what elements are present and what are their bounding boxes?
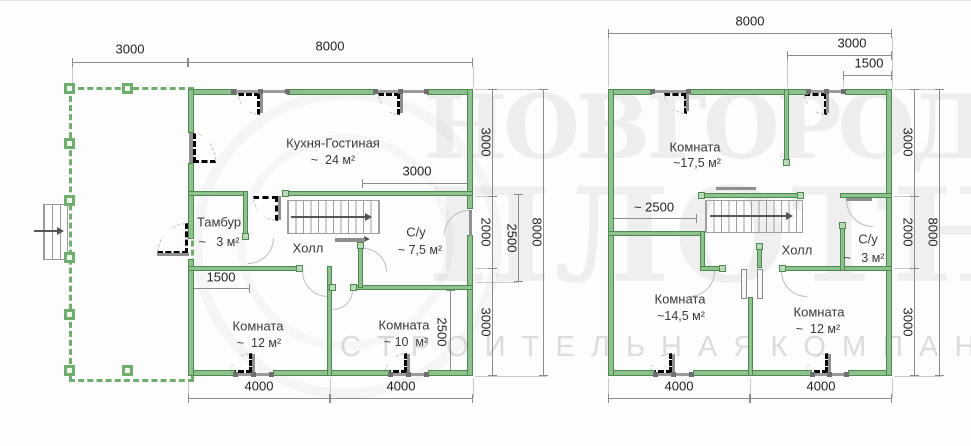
dimension-label: 3000 [901,308,916,337]
window-swing-arc [664,93,687,114]
window-end [653,372,658,377]
window-leaf [686,93,689,111]
terrace-post [122,365,133,376]
wall-jamb [756,243,763,250]
door-leaf [278,196,281,220]
terrace-post [64,195,75,206]
entrance-door-leaf [157,253,189,256]
terrace-post [64,365,75,376]
door-swing-arc [302,271,328,297]
dimension-tick [910,268,919,269]
dimension-label: 4000 [807,379,836,394]
dimension-label: 3000 [901,128,916,157]
dimension-label: 2000 [479,218,494,247]
room-area-tambour: ~ 3 м² [199,235,240,249]
dimension-label: 2500 [435,318,450,347]
wall [188,89,194,133]
dimension-line [608,398,750,399]
window-end [844,372,849,377]
wall-jamb [282,190,289,197]
wall [467,235,473,376]
window-end [686,89,691,94]
window-end [689,372,694,377]
wall [690,89,808,95]
room-area-wc: ~ 7,5 м² [398,243,442,257]
dimension-line [843,75,892,76]
dimension-tick [910,196,919,197]
wall [700,193,803,198]
window-leaf [252,354,255,373]
door-leaf [189,133,193,163]
window-leaf [828,354,831,373]
terrace-post [64,138,75,149]
dimension-label: 8000 [926,218,941,247]
window-end [269,372,274,377]
wall [886,89,892,376]
door-swing-arc [333,290,353,310]
dimension-label: 1500 [855,56,884,71]
window-leaf [672,354,675,373]
wall [608,231,703,236]
wall-jamb [296,265,303,272]
extension-line [608,37,609,87]
room-area-right: ~ 12 м² [796,322,840,336]
dimension-line [750,398,892,399]
window-leaf [400,93,403,113]
dimension-label: 2000 [901,218,916,247]
window [652,90,690,93]
dimension-label: ~ 2500 [634,200,674,215]
window-end [251,372,256,377]
wall-jamb [719,265,726,272]
dimension-label: 1500 [207,270,236,285]
wall [243,191,248,238]
dimension-line [188,62,473,63]
extension-line [475,376,547,377]
window-leaf [260,93,263,113]
wall [188,370,235,376]
extension-line [475,282,519,283]
dimension-line [362,183,473,184]
wall-jamb [783,159,790,166]
extension-line [787,59,788,87]
wall-jamb [779,265,786,272]
room-area-kitchen: ~ 24 м² [311,153,355,167]
door-swing-arc [363,248,387,272]
wall [327,266,332,376]
wall [784,89,789,164]
door-swing-arc [253,196,278,221]
door-leaf [716,187,756,190]
terrace-post [64,83,75,94]
wall [608,89,652,95]
wall [358,244,363,288]
dimension-label: 8000 [530,218,545,247]
closet-wall [741,269,747,299]
dimension-label: 3000 [479,128,494,157]
terrace-post [122,83,133,94]
dimension-line [608,33,892,34]
dimension-line [192,288,250,289]
window-end [285,89,290,94]
room-label-left: Комната [233,319,284,334]
dimension-label: 3000 [116,42,145,57]
wall [287,89,375,95]
wall [845,89,892,95]
dimension-label: 4000 [245,379,274,394]
room-area-left: ~14,5 м² [657,309,705,323]
door-swing-arc [781,271,807,297]
room-area-right: ~ 10 м² [384,335,428,349]
window-end [424,372,429,377]
window-leaf [407,354,410,373]
wall-jamb [350,284,357,291]
room-label-hall: Холл [782,243,813,258]
dimension-label: 3000 [403,164,432,179]
window-end [424,89,429,94]
door-leaf [826,93,829,113]
room-area-left: ~ 12 м² [237,336,281,350]
room-label-wc: С/у [858,232,878,247]
closet-wall [757,269,763,299]
window-end [258,89,263,94]
dimension-label: 4000 [387,379,416,394]
wall-jamb [242,233,249,240]
door-leaf [846,198,872,201]
window-swing-arc [378,93,400,115]
window-end [824,89,829,94]
wall [188,89,237,95]
landing-bar [335,238,365,242]
window-end [810,372,815,377]
room-label-kitchen: Кухня-Гостиная [286,136,380,151]
room-label-right: Комната [379,318,430,333]
extension-line [473,67,474,87]
dimension-tick [488,268,497,269]
dimension-label: 8000 [316,39,345,54]
dimension-label: 8000 [736,14,765,29]
dimension-label: 3000 [838,36,867,51]
dimension-line [330,398,473,399]
window-end [373,89,378,94]
door-leaf [469,210,472,236]
extension-line [475,89,547,90]
window-end [671,372,676,377]
window-end [841,89,846,94]
room-label-right: Комната [794,305,845,320]
window-end [827,372,832,377]
dimension-label: 3000 [479,308,494,337]
window-end [650,89,655,94]
dimension-line [72,62,188,63]
door-swing-arc [248,238,274,264]
extension-line [892,378,893,398]
wall-jamb [797,192,804,199]
wall [608,370,655,376]
wall [188,163,194,239]
extension-line [473,378,474,398]
terrace-post [64,309,75,320]
room-label-top: Комната [670,140,721,155]
dimension-tick [488,196,497,197]
terrace-post [64,252,75,263]
wall [188,266,302,271]
wall [748,297,753,376]
wall-jamb [357,242,364,249]
staircase-arrow-head [786,212,793,220]
window-end [388,372,393,377]
window-end [233,372,238,377]
room-area-wc: ~ 3 м² [844,251,885,265]
window-end [406,372,411,377]
room-label-left: Комната [655,292,706,307]
dimension-label: 2500 [505,224,520,253]
wall [780,266,892,271]
wall [353,285,473,290]
wall [188,191,248,196]
staircase-arrow [291,216,367,218]
extension-line [892,37,893,87]
wall-jamb [839,222,846,229]
window-end [231,89,236,94]
dimension-line [188,398,330,399]
door-swing-arc [193,133,216,163]
window-swing-arc [238,93,260,115]
wall [700,231,705,271]
entrance-arrow [34,230,58,232]
dimension-label: 4000 [665,379,694,394]
wall-jamb [329,284,336,291]
room-label-tambour: Тамбур [197,215,241,230]
door-swing-arc [804,93,827,115]
extension-line [894,376,942,377]
window-end [806,89,811,94]
room-label-wc: С/у [406,225,426,240]
floor-plan-drawing: НОВГОРОДСКИЙ ПЛОТНИК С Т Р О И Т Е Л Ь Н… [0,0,971,446]
wall [283,191,473,196]
staircase-arrow [710,215,788,217]
room-label-hall: Холл [293,241,324,256]
wall-jamb [698,192,705,199]
room-area-top: ~17,5 м² [673,156,721,170]
door-swing-arc [846,200,873,227]
dimension-line [612,218,697,219]
entrance-arrow-head [57,227,64,235]
staircase-arrow-head [365,213,372,221]
door-swing-arc [444,210,469,235]
dimension-line [450,290,451,374]
wall [188,259,194,376]
window-end [398,89,403,94]
extension-line [843,79,844,87]
